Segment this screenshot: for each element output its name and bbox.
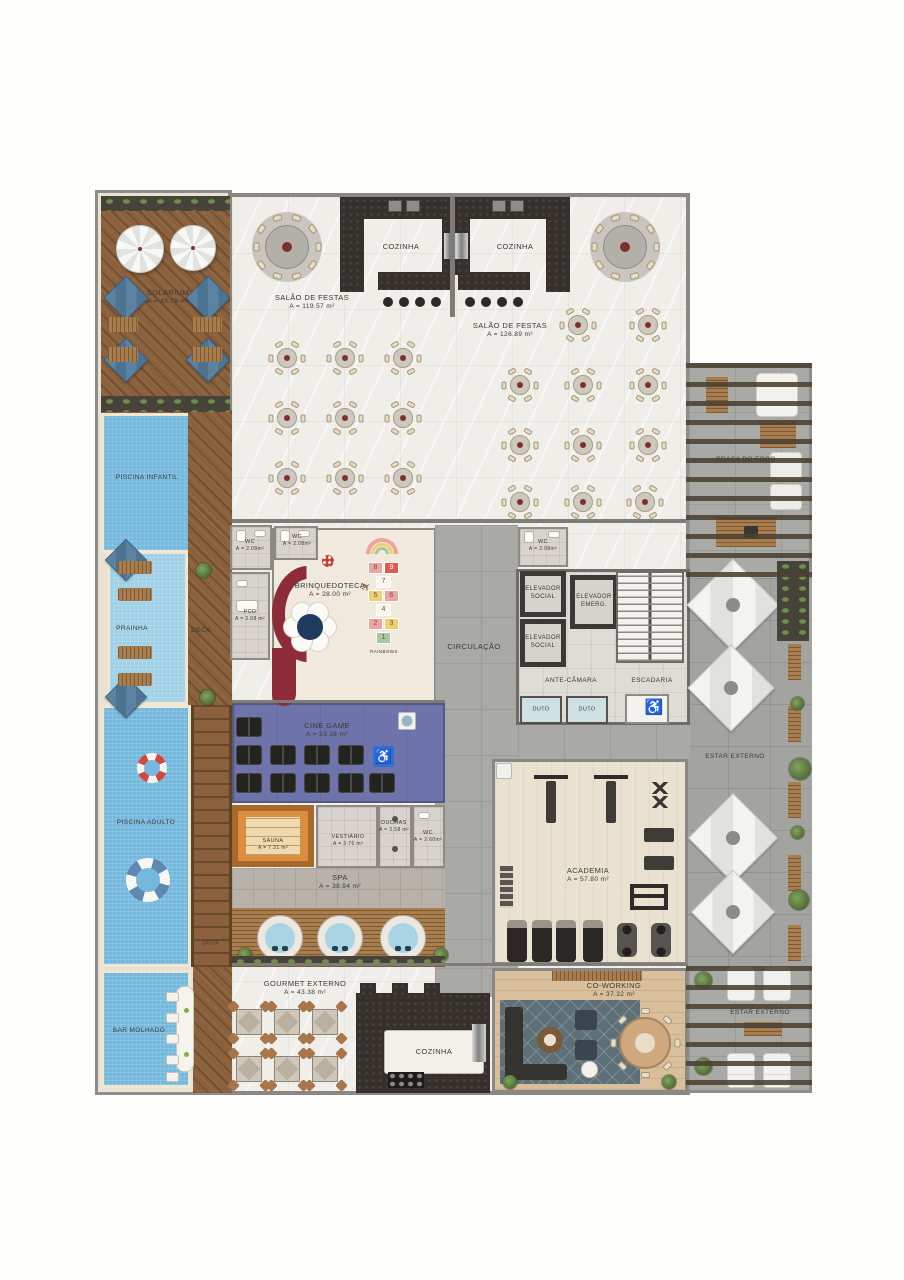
lifebuoy-hole bbox=[136, 868, 160, 892]
chair bbox=[269, 354, 274, 362]
lounger bbox=[108, 347, 138, 362]
room-label-salao2: SALÃO DE FESTASA = 126.89 m² bbox=[473, 321, 547, 339]
bar-stool bbox=[513, 297, 523, 307]
plant bbox=[789, 758, 811, 780]
bar-stool bbox=[166, 1013, 179, 1023]
cinema-sofa bbox=[338, 773, 364, 793]
chair bbox=[502, 381, 507, 389]
hot-tub bbox=[258, 916, 302, 960]
bar-stool bbox=[399, 297, 409, 307]
exercise-bike bbox=[651, 923, 671, 957]
lazy-susan bbox=[635, 1033, 655, 1053]
bar-stool bbox=[166, 1055, 179, 1065]
bar-stool bbox=[431, 297, 441, 307]
plant bbox=[196, 563, 211, 578]
room-label-ante-camara: ANTE-CÂMARA bbox=[545, 677, 597, 685]
praca-do-fogo-pergola bbox=[686, 363, 812, 580]
solarium-planter-top bbox=[101, 196, 230, 211]
tdot-decor bbox=[400, 355, 406, 361]
chair bbox=[592, 321, 597, 329]
cw-sofa bbox=[505, 1007, 523, 1069]
estar2-pergola bbox=[686, 966, 812, 1092]
chair bbox=[597, 381, 602, 389]
cinema-sofa bbox=[338, 745, 364, 765]
sink bbox=[236, 580, 248, 587]
room-label-circulacao: CIRCULAÇÃO bbox=[447, 642, 500, 652]
plant bbox=[200, 690, 215, 705]
bar-stool bbox=[383, 297, 393, 307]
plant bbox=[791, 826, 804, 839]
hopscotch-9: 9 bbox=[384, 562, 399, 574]
bar-stool bbox=[415, 297, 425, 307]
tdot-decor bbox=[645, 322, 651, 328]
room-label-duto2: DUTO bbox=[578, 706, 595, 713]
bench bbox=[788, 855, 801, 891]
hopscotch-3: 3 bbox=[384, 618, 399, 630]
lounger bbox=[118, 561, 152, 574]
bench bbox=[788, 706, 801, 742]
cozinha1-peninsula bbox=[378, 272, 450, 290]
drink bbox=[184, 1052, 189, 1057]
room-label-piscina-infantil: PISCINA INFANTIL bbox=[116, 474, 178, 482]
cozinha3-stove bbox=[388, 1072, 424, 1088]
lounger bbox=[192, 347, 222, 362]
chair bbox=[565, 498, 570, 506]
wall-salao-south bbox=[232, 519, 686, 523]
chair bbox=[385, 414, 390, 422]
jet bbox=[282, 946, 288, 951]
room-label-coworking: CO-WORKINGA = 37.32 m² bbox=[587, 981, 641, 999]
barbell bbox=[634, 894, 664, 898]
cw-armchair bbox=[575, 1040, 597, 1060]
room-label-deck-lap: DECK bbox=[203, 940, 220, 947]
chair bbox=[327, 354, 332, 362]
chair bbox=[417, 354, 422, 362]
sink bbox=[418, 812, 430, 819]
hopscotch-4: 4 bbox=[376, 604, 391, 616]
room-label-deck-upper: DECK bbox=[191, 627, 211, 635]
chair bbox=[662, 441, 667, 449]
room-label-estar2: ESTAR EXTERNO bbox=[730, 1009, 790, 1017]
chair bbox=[565, 381, 570, 389]
wall-salao-divider bbox=[450, 197, 455, 317]
chair bbox=[359, 414, 364, 422]
cinema-sofa bbox=[270, 745, 296, 765]
table bbox=[726, 831, 740, 845]
wall-cine-north bbox=[232, 700, 445, 703]
chair bbox=[627, 498, 632, 506]
tdot-decor bbox=[342, 475, 348, 481]
room-label-bar-molhado: BAR MOLHADO bbox=[113, 1027, 165, 1035]
room-label-solarium: SOLARIUMA = 43.78 m² bbox=[147, 288, 189, 306]
chair bbox=[417, 414, 422, 422]
bench bbox=[788, 644, 801, 680]
chair bbox=[565, 441, 570, 449]
chair bbox=[269, 414, 274, 422]
hopscotch-6: 6 bbox=[384, 590, 399, 602]
room-label-elevador-emerg: ELEVADOR EMERG. bbox=[571, 594, 617, 610]
cozinha3-crenel bbox=[424, 983, 440, 997]
appliance bbox=[388, 200, 402, 212]
room-label-brinquedoteca: BRINQUEDOTECAA = 28.00 m² bbox=[295, 581, 366, 599]
bar-stool bbox=[481, 297, 491, 307]
jet bbox=[405, 946, 411, 951]
room-piscina-infantil bbox=[101, 413, 193, 553]
play-sofa bbox=[272, 648, 296, 706]
drink bbox=[184, 1008, 189, 1013]
rack bbox=[500, 866, 513, 908]
plant bbox=[789, 890, 809, 910]
room-duchas bbox=[378, 805, 412, 868]
floor-plan: ♿ ♿ SOLARIUMA = 43.78 m² PISCINA INFANTI… bbox=[0, 0, 904, 1280]
appliance bbox=[406, 200, 420, 212]
room-label-praca-do-fogo: PRAÇA DO FOGO bbox=[716, 456, 776, 464]
room-label-cozinha1: COZINHA bbox=[383, 242, 420, 252]
wall-unit bbox=[496, 763, 512, 779]
room-label-cine-game: CINE GAMEA = 33.38 m² bbox=[304, 721, 350, 739]
chair bbox=[560, 321, 565, 329]
cozinha3-crenel bbox=[360, 983, 376, 997]
tdot-decor bbox=[191, 246, 195, 250]
cinema-sofa bbox=[270, 773, 296, 793]
solarium-planter-bottom bbox=[101, 396, 230, 412]
lounger bbox=[192, 317, 222, 332]
tdot-decor bbox=[642, 499, 648, 505]
room-label-estar1: ESTAR EXTERNO bbox=[705, 753, 765, 761]
fridge bbox=[456, 233, 468, 259]
lounger bbox=[118, 646, 152, 659]
room-label-gourmet: GOURMET EXTERNOA = 43.38 m² bbox=[264, 979, 347, 997]
tdot-decor bbox=[284, 475, 290, 481]
tdot-decor bbox=[645, 382, 651, 388]
treadmill bbox=[507, 920, 527, 962]
chair bbox=[591, 243, 597, 252]
chair bbox=[327, 414, 332, 422]
jet bbox=[342, 946, 348, 951]
lounger bbox=[118, 588, 152, 601]
wall-gourmet-north bbox=[232, 963, 688, 966]
room-label-salao1: SALÃO DE FESTASA = 119.57 m² bbox=[275, 293, 349, 311]
circulacao-east bbox=[518, 723, 690, 759]
room-label-piscina-adulto: PISCINA ADULTO bbox=[117, 819, 175, 827]
tdot-decor bbox=[645, 442, 651, 448]
room-piscina-adulto bbox=[101, 705, 191, 967]
room-label-duto1: DUTO bbox=[532, 706, 549, 713]
chair bbox=[301, 414, 306, 422]
room-deck-upper bbox=[188, 410, 232, 710]
room-label-spa: SPAA = 38.94 m² bbox=[319, 873, 361, 891]
chair bbox=[534, 498, 539, 506]
appliance bbox=[510, 200, 524, 212]
room-label-academia: ACADEMIAA = 57.80 m² bbox=[567, 866, 609, 884]
treadmill bbox=[532, 920, 552, 962]
exercise-bike bbox=[617, 923, 637, 957]
projector-icon bbox=[398, 712, 416, 730]
dumbbell-rack bbox=[648, 782, 672, 794]
flower-center bbox=[297, 614, 323, 640]
chair bbox=[417, 474, 422, 482]
chair bbox=[630, 441, 635, 449]
toy bbox=[322, 555, 334, 567]
cinema-sofa bbox=[236, 773, 262, 793]
hopscotch-caption: RAINBOWS bbox=[370, 649, 398, 655]
hopscotch-7: 7 bbox=[376, 576, 391, 588]
jet bbox=[332, 946, 338, 951]
table bbox=[726, 905, 740, 919]
chair bbox=[301, 354, 306, 362]
cozinha3-crenel bbox=[392, 983, 408, 997]
tdot-decor bbox=[342, 415, 348, 421]
chair bbox=[359, 354, 364, 362]
barbell bbox=[534, 775, 568, 779]
chair bbox=[385, 474, 390, 482]
cine-wheelchair-icon: ♿ bbox=[373, 746, 394, 767]
hopscotch-8: 8 bbox=[368, 562, 383, 574]
chair bbox=[359, 474, 364, 482]
tdot-decor bbox=[580, 382, 586, 388]
chair bbox=[315, 243, 321, 252]
bar-stool bbox=[166, 1072, 179, 1082]
chair bbox=[653, 243, 659, 252]
wheelchair-icon: ♿ bbox=[644, 698, 664, 716]
tdot-decor bbox=[517, 382, 523, 388]
chair bbox=[597, 441, 602, 449]
room-label-elevador2: ELEVADOR SOCIAL bbox=[520, 635, 566, 651]
bar-stool bbox=[166, 1034, 179, 1044]
chair bbox=[502, 498, 507, 506]
cinema-sofa bbox=[236, 717, 262, 737]
hopscotch-1: 1 bbox=[376, 632, 391, 644]
lounger bbox=[118, 673, 152, 686]
chair bbox=[659, 498, 664, 506]
room-label-sauna: SAUNAA = 7.31 m² bbox=[258, 838, 288, 852]
chair bbox=[630, 321, 635, 329]
chair bbox=[534, 441, 539, 449]
treadmill bbox=[583, 920, 603, 962]
chair bbox=[662, 321, 667, 329]
cinema-sofa bbox=[236, 745, 262, 765]
tdot-decor bbox=[580, 499, 586, 505]
tdot-decor bbox=[575, 322, 581, 328]
mat bbox=[644, 828, 674, 842]
side-table bbox=[581, 1061, 598, 1078]
tdot-decor bbox=[620, 242, 630, 252]
bench bbox=[788, 782, 801, 818]
table bbox=[724, 681, 738, 695]
bench bbox=[606, 781, 616, 823]
chair bbox=[385, 354, 390, 362]
cozinha2-counter-side bbox=[546, 197, 570, 292]
lifebuoy-hole bbox=[144, 760, 160, 776]
tdot-decor bbox=[284, 355, 290, 361]
sideboard bbox=[552, 971, 642, 981]
tdot-decor bbox=[138, 247, 142, 251]
room-label-wc3: WCA = 2.08m² bbox=[529, 539, 557, 553]
room-label-duchas: DUCHASA = 3.58 m² bbox=[379, 820, 409, 834]
room-label-cozinha3: COZINHA bbox=[416, 1047, 453, 1057]
chair bbox=[641, 1008, 650, 1014]
chair bbox=[662, 381, 667, 389]
treadmill bbox=[556, 920, 576, 962]
tdot-decor bbox=[284, 415, 290, 421]
chair bbox=[610, 1039, 616, 1048]
chair bbox=[630, 381, 635, 389]
bench bbox=[546, 781, 556, 823]
escadaria-stairs bbox=[616, 571, 684, 663]
chair bbox=[674, 1039, 680, 1048]
chair bbox=[269, 474, 274, 482]
mat bbox=[644, 856, 674, 870]
room-label-wc4: WCA = 2.60m² bbox=[414, 830, 442, 844]
cozinha1-counter-side bbox=[340, 197, 364, 292]
room-label-vestiario: VESTIÁRIOA = 3.76 m² bbox=[332, 834, 365, 848]
room-label-pcd: PCDA = 3.68 m² bbox=[235, 609, 265, 623]
tdot-decor bbox=[517, 442, 523, 448]
dumbbell-rack bbox=[648, 796, 672, 808]
tdot-decor bbox=[342, 355, 348, 361]
room-label-wc1: WCA = 2.08m² bbox=[236, 539, 264, 553]
cinema-sofa bbox=[369, 773, 395, 793]
jet bbox=[272, 946, 278, 951]
bench bbox=[788, 925, 801, 961]
chair bbox=[534, 381, 539, 389]
room-label-wc2: WCA = 2.08m² bbox=[283, 534, 311, 548]
plant bbox=[503, 1075, 517, 1089]
chair bbox=[641, 1072, 650, 1078]
bar-stool bbox=[497, 297, 507, 307]
table bbox=[726, 598, 740, 612]
sink bbox=[254, 530, 266, 537]
cw-armchair bbox=[575, 1010, 597, 1030]
hot-tub bbox=[318, 916, 362, 960]
bar-stool bbox=[465, 297, 475, 307]
chair bbox=[597, 498, 602, 506]
tdot-decor bbox=[400, 415, 406, 421]
plant bbox=[791, 697, 804, 710]
cozinha3-fridge bbox=[472, 1024, 486, 1062]
room-deck-lap bbox=[191, 705, 232, 967]
bar-stool bbox=[166, 992, 179, 1002]
room-label-cozinha2: COZINHA bbox=[497, 242, 534, 252]
deck-bottom bbox=[193, 967, 232, 1093]
tdot-decor bbox=[400, 475, 406, 481]
appliance bbox=[492, 200, 506, 212]
cinema-sofa bbox=[304, 745, 330, 765]
room-label-escadaria: ESCADARIA bbox=[631, 677, 672, 685]
lounger bbox=[108, 317, 138, 332]
room-label-elevador1: ELEVADOR SOCIAL bbox=[520, 586, 566, 602]
hopscotch-2: 2 bbox=[368, 618, 383, 630]
jet bbox=[395, 946, 401, 951]
hot-tub bbox=[381, 916, 425, 960]
room-label-prainha: PRAINHA bbox=[116, 625, 148, 633]
sink bbox=[548, 531, 560, 538]
tdot-decor bbox=[580, 442, 586, 448]
chair bbox=[301, 474, 306, 482]
rainbow-art-inner bbox=[375, 547, 389, 554]
chair bbox=[502, 441, 507, 449]
tray bbox=[544, 1034, 556, 1046]
plant bbox=[662, 1075, 676, 1089]
cinema-sofa bbox=[304, 773, 330, 793]
shower-head bbox=[392, 846, 398, 852]
chair bbox=[253, 243, 259, 252]
chair bbox=[327, 474, 332, 482]
tdot-decor bbox=[517, 499, 523, 505]
barbell bbox=[594, 775, 628, 779]
tdot-decor bbox=[282, 242, 292, 252]
